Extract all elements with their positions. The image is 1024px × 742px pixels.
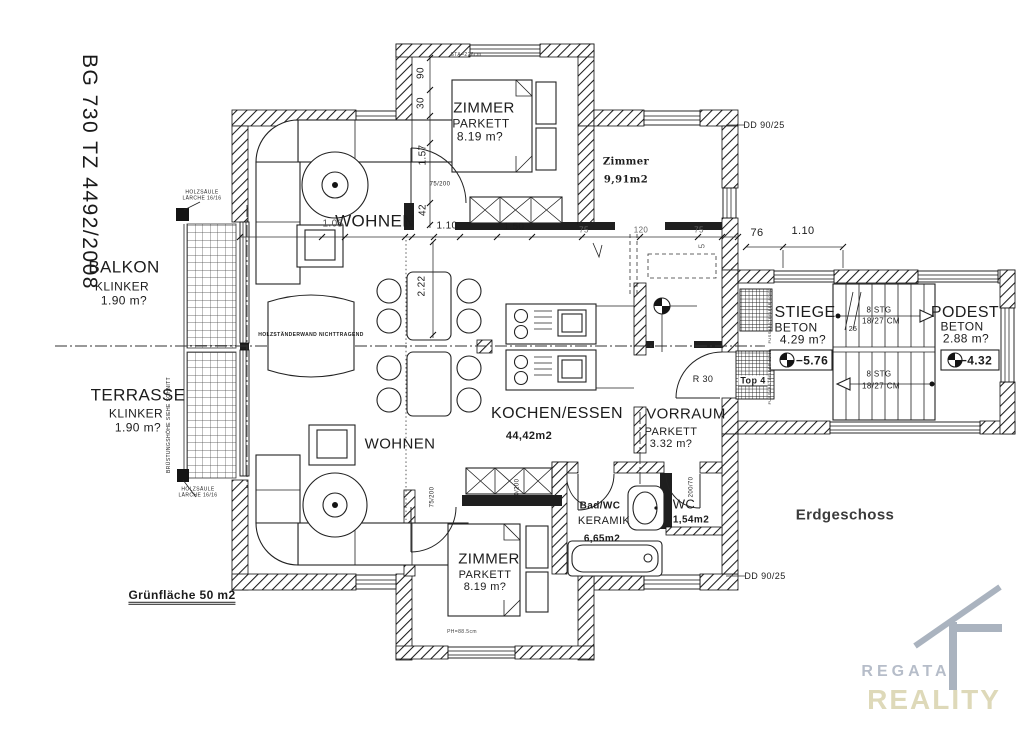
stairs-upper-dim: 18/27 CM [862, 318, 900, 327]
dim-1-50: 1.50 [503, 221, 524, 232]
balkon-title: BALKON [88, 257, 159, 276]
badwc-title: Bad/WC [580, 500, 621, 511]
gruenflaeche-note: Grünfläche 50 m2 [128, 589, 235, 605]
dim-2-22: 2.22 [416, 275, 427, 296]
dim-1-10-b: 1.10 [791, 225, 814, 237]
dd-bottom: DD 90/25 [744, 571, 785, 581]
logo-regata-text: REGATA [861, 663, 950, 681]
terrasse-material: KLINKER [109, 407, 163, 420]
dim-30: 30 [415, 97, 426, 109]
dim-75-a: 75 [579, 227, 589, 236]
podest-level: −4.32 [960, 354, 992, 367]
zimmer-top-area: 8.19 m? [457, 130, 503, 143]
wc-area: 1,54m2 [673, 514, 709, 525]
zimmer-bottom-material: PARKETT [459, 569, 512, 581]
stiege-area: 4.29 m? [780, 333, 826, 346]
top4-label: Top 4 [738, 375, 767, 386]
holzsaeule-note-top: HOLZSÄULE LÄRCHE 16/16 [183, 190, 222, 201]
stiege-level: −5.76 [796, 354, 828, 367]
annotation-layer: BALKONKLINKER1.90 m?TERRASSEKLINKER1.90 … [0, 0, 1024, 742]
dim-25: 25 [849, 326, 858, 334]
dim-5: 5 [699, 244, 708, 249]
note-sta: STA=226cm [451, 53, 482, 59]
podest-area: 2.88 m? [943, 332, 989, 345]
dim-90: 90 [415, 67, 426, 79]
balkon-material: KLINKER [95, 280, 149, 293]
balkon-area: 1.90 m? [101, 294, 147, 307]
fussabstreifer-lower: FUSSABSTREIFER 80/60 [768, 350, 772, 405]
dim-70-200-bad: 70/200 [515, 479, 522, 500]
holzstaenderwand-note: HOLZSTÄNDERWAND NICHTTRAGEND [258, 333, 364, 339]
fussabstreifer-upper: FUSSABSTREIFER 80/60 [768, 289, 772, 344]
dim-10: 10 [404, 221, 414, 230]
vorraum-title: VORRAUM [646, 407, 725, 424]
dim-75-200-lower: 75/200 [430, 487, 437, 508]
zimmer-bottom-title: ZIMMER [458, 552, 520, 569]
terrasse-area: 1.90 m? [115, 421, 161, 434]
kochen-area: 44,42m2 [506, 430, 552, 442]
dim-75-200-top: 75/200 [430, 182, 451, 189]
holzsaeule-note-bottom: HOLZSÄULE LÄRCHE 16/16 [179, 487, 218, 498]
vorraum-area: 3.32 m? [650, 438, 693, 450]
wohnen-upper: WOHNEN [335, 211, 415, 230]
dim-200-70-wc: 200/70 [689, 477, 696, 498]
dim-120: 120 [634, 227, 649, 236]
dim-75-b: 75 [694, 227, 704, 236]
stairs-upper-count: 8 STG [866, 307, 891, 316]
dd-top: DD 90/25 [743, 120, 784, 130]
bruestungshoehe-note: BRÜSTUNGSHÖHE SIEHE SCHNITT [167, 377, 173, 473]
dim-42: 42 [417, 204, 428, 216]
wc-title: WC [673, 498, 695, 513]
dim-1-10: 1.10 [436, 220, 457, 231]
zimmer-top-title: ZIMMER [453, 101, 515, 118]
door-r30: R 30 [693, 374, 714, 384]
note-ph: PH=88.5cm [447, 630, 477, 636]
dim-1-05: 1.05 [322, 218, 343, 229]
stairs-lower-dim: 18/27 CM [862, 383, 900, 392]
kochen-title: KOCHEN/ESSEN [491, 405, 623, 423]
floorplan-page: BG 730 TZ 4492/2008 BALKONKLINKER1.90 m?… [0, 0, 1024, 742]
zimmer-bottom-area: 8.19 m? [464, 581, 507, 593]
floor-title: Erdgeschoss [796, 508, 895, 525]
vorraum-material: PARKETT [645, 426, 698, 438]
badwc-area: 6,65m2 [584, 533, 620, 544]
dim-1-57: 1.57 [417, 144, 428, 165]
dim-76: 76 [750, 227, 763, 239]
zimmer-right-area: 9,91m2 [604, 174, 648, 185]
wohnen-lower: WOHNEN [365, 437, 436, 454]
stairs-lower-count: 8 STG [866, 371, 891, 380]
logo-reality-text: REALITY [867, 684, 1001, 716]
badwc-material: KERAMIK [578, 515, 630, 527]
zimmer-right-title: Zimmer [603, 156, 649, 167]
stiege-title: STIEGE [774, 304, 835, 322]
